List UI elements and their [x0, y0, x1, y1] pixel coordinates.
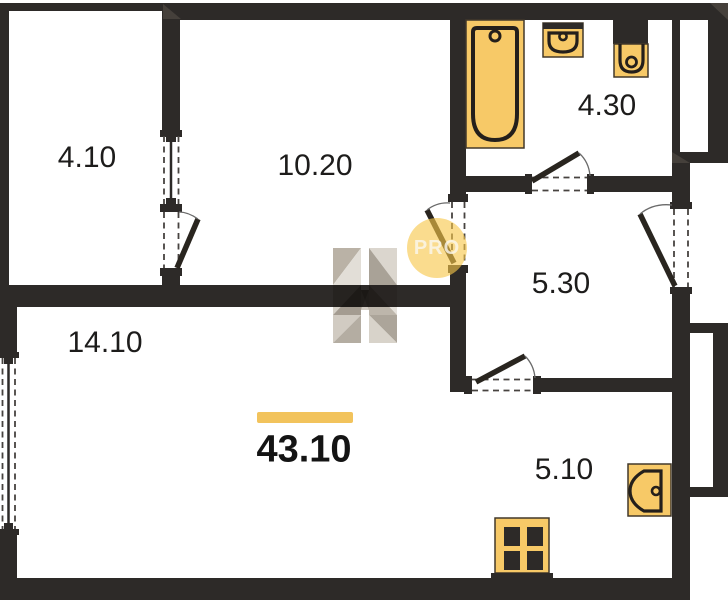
room-area-label-bathroom: 4.30: [578, 89, 636, 123]
entrance-door-leaf: [640, 214, 675, 286]
total-area-accent-bar: [257, 412, 353, 423]
watermark-h-logo: [333, 248, 397, 343]
bathtub-icon: [466, 20, 524, 148]
total-area-label: 43.10: [256, 429, 351, 472]
room-area-label-kitchen: 5.10: [535, 453, 593, 487]
kitchen-sink-icon: [628, 464, 671, 516]
room-area-label-living-room: 14.10: [67, 326, 142, 360]
wash-basin-icon: [543, 23, 583, 57]
kitchen-door-leaf: [476, 356, 525, 382]
pro-watermark-badge: PRO: [407, 218, 467, 278]
room-area-label-hallway: 5.30: [532, 267, 590, 301]
toilet-icon: [613, 20, 648, 77]
balcony-door-leaf: [177, 219, 198, 268]
floor-plan: 4.10 10.20 4.30 5.30 14.10 5.10 43.10 PR…: [0, 0, 728, 600]
door-opening-dashes: [164, 178, 688, 391]
room-area-label-balcony: 4.10: [58, 141, 116, 175]
pro-badge-text: PRO: [414, 237, 460, 260]
room-area-label-bedroom: 10.20: [277, 149, 352, 183]
stove-icon: [491, 518, 553, 579]
